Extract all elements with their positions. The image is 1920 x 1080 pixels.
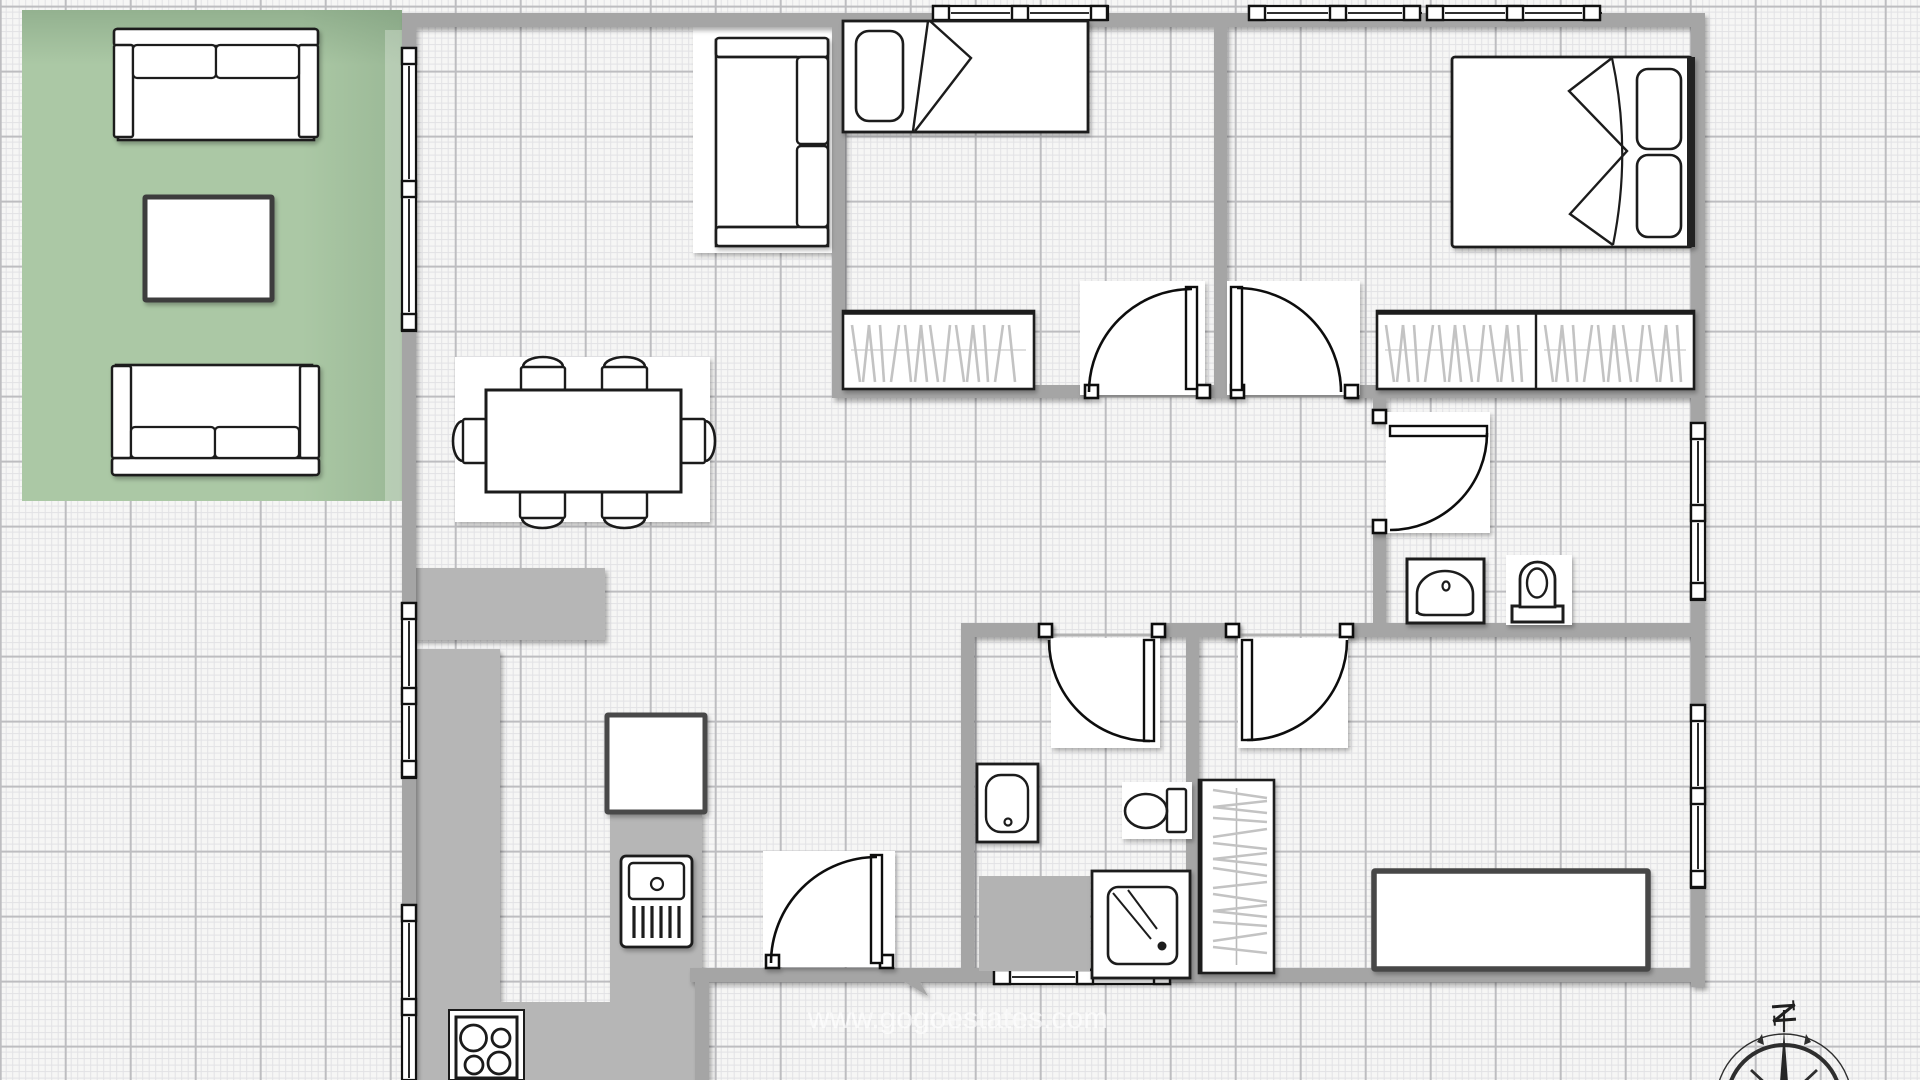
svg-text:www.gogoestates.com: www.gogoestates.com bbox=[807, 1002, 1108, 1035]
